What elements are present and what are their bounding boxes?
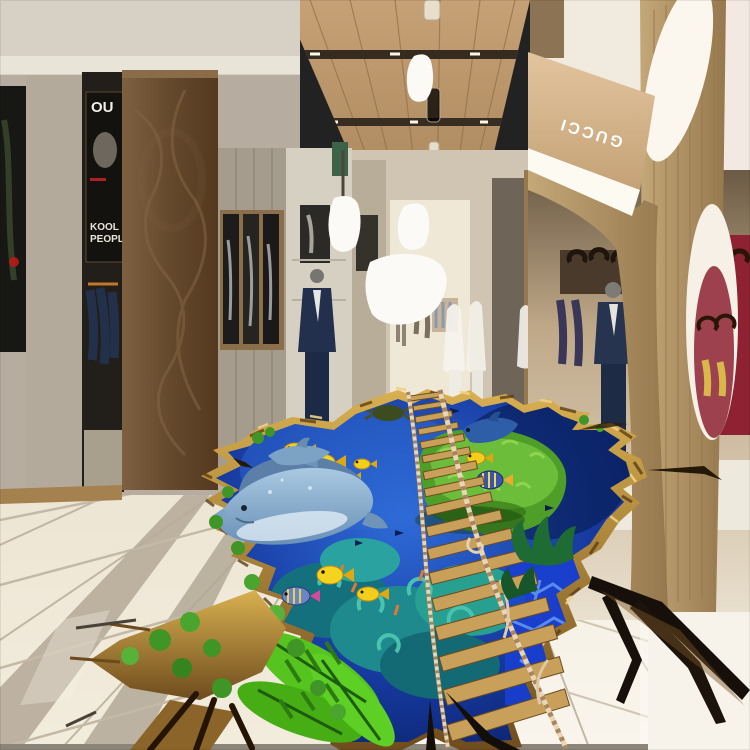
- white-blob: [407, 54, 433, 101]
- dolphin-eye: [466, 428, 470, 432]
- turtle-shell: [372, 405, 404, 421]
- poster-headline: OU: [91, 99, 114, 116]
- fish-body: [317, 566, 343, 584]
- moss-tuft: [330, 704, 346, 720]
- left-display-red-glow: [9, 257, 19, 267]
- fish-eye: [321, 570, 325, 574]
- fish-eye: [284, 592, 287, 595]
- ceiling-recess-dark: [530, 0, 564, 58]
- hanging-clothes: [90, 288, 115, 364]
- fish-eye: [361, 591, 364, 594]
- shop-poster-small: [300, 205, 330, 263]
- moss-tuft: [244, 574, 260, 590]
- mannequin-head: [310, 269, 324, 283]
- green-hanging-sign: [332, 142, 348, 176]
- oval-store-view: [694, 266, 734, 438]
- fish-body: [354, 459, 370, 469]
- moss-tuft: [222, 486, 234, 498]
- pendant-light: [424, 0, 440, 20]
- dolphin-eye: [241, 505, 247, 511]
- poster-face: [93, 132, 117, 168]
- scene-canvas: OU KOOL PEOPLE: [0, 0, 750, 750]
- moss-tuft: [209, 515, 223, 529]
- beige-wall-panel: [26, 75, 82, 495]
- moss-clump: [121, 647, 139, 665]
- bubble: [268, 490, 272, 494]
- moss-tuft: [310, 680, 326, 696]
- moss-tuft: [231, 541, 245, 555]
- moss-clump: [172, 658, 192, 678]
- moss-clump: [149, 629, 171, 651]
- white-blob: [328, 196, 360, 252]
- moss-tuft: [287, 639, 305, 657]
- fish-eye: [469, 455, 472, 458]
- fish-eye: [356, 461, 359, 464]
- walnut-pillar: [122, 70, 218, 490]
- moss-clump: [212, 678, 232, 698]
- moss-tuft: [579, 415, 589, 425]
- moss-tuft: [265, 427, 275, 437]
- fish-body: [282, 587, 310, 605]
- fish-body: [357, 587, 379, 601]
- mall-corridor-photo: OU KOOL PEOPLE: [0, 0, 750, 750]
- bubble: [281, 479, 284, 482]
- white-blob: [398, 203, 430, 250]
- pillar-top-trim: [122, 70, 218, 78]
- moss-tuft: [252, 432, 264, 444]
- moss-clump: [203, 639, 221, 657]
- mannequin-head: [605, 282, 621, 298]
- bubble: [308, 486, 312, 490]
- poster-red-line: [90, 178, 106, 181]
- poster-line1: KOOL: [90, 222, 119, 233]
- moss-clump: [180, 612, 200, 632]
- shop-floor-glow: [84, 430, 122, 490]
